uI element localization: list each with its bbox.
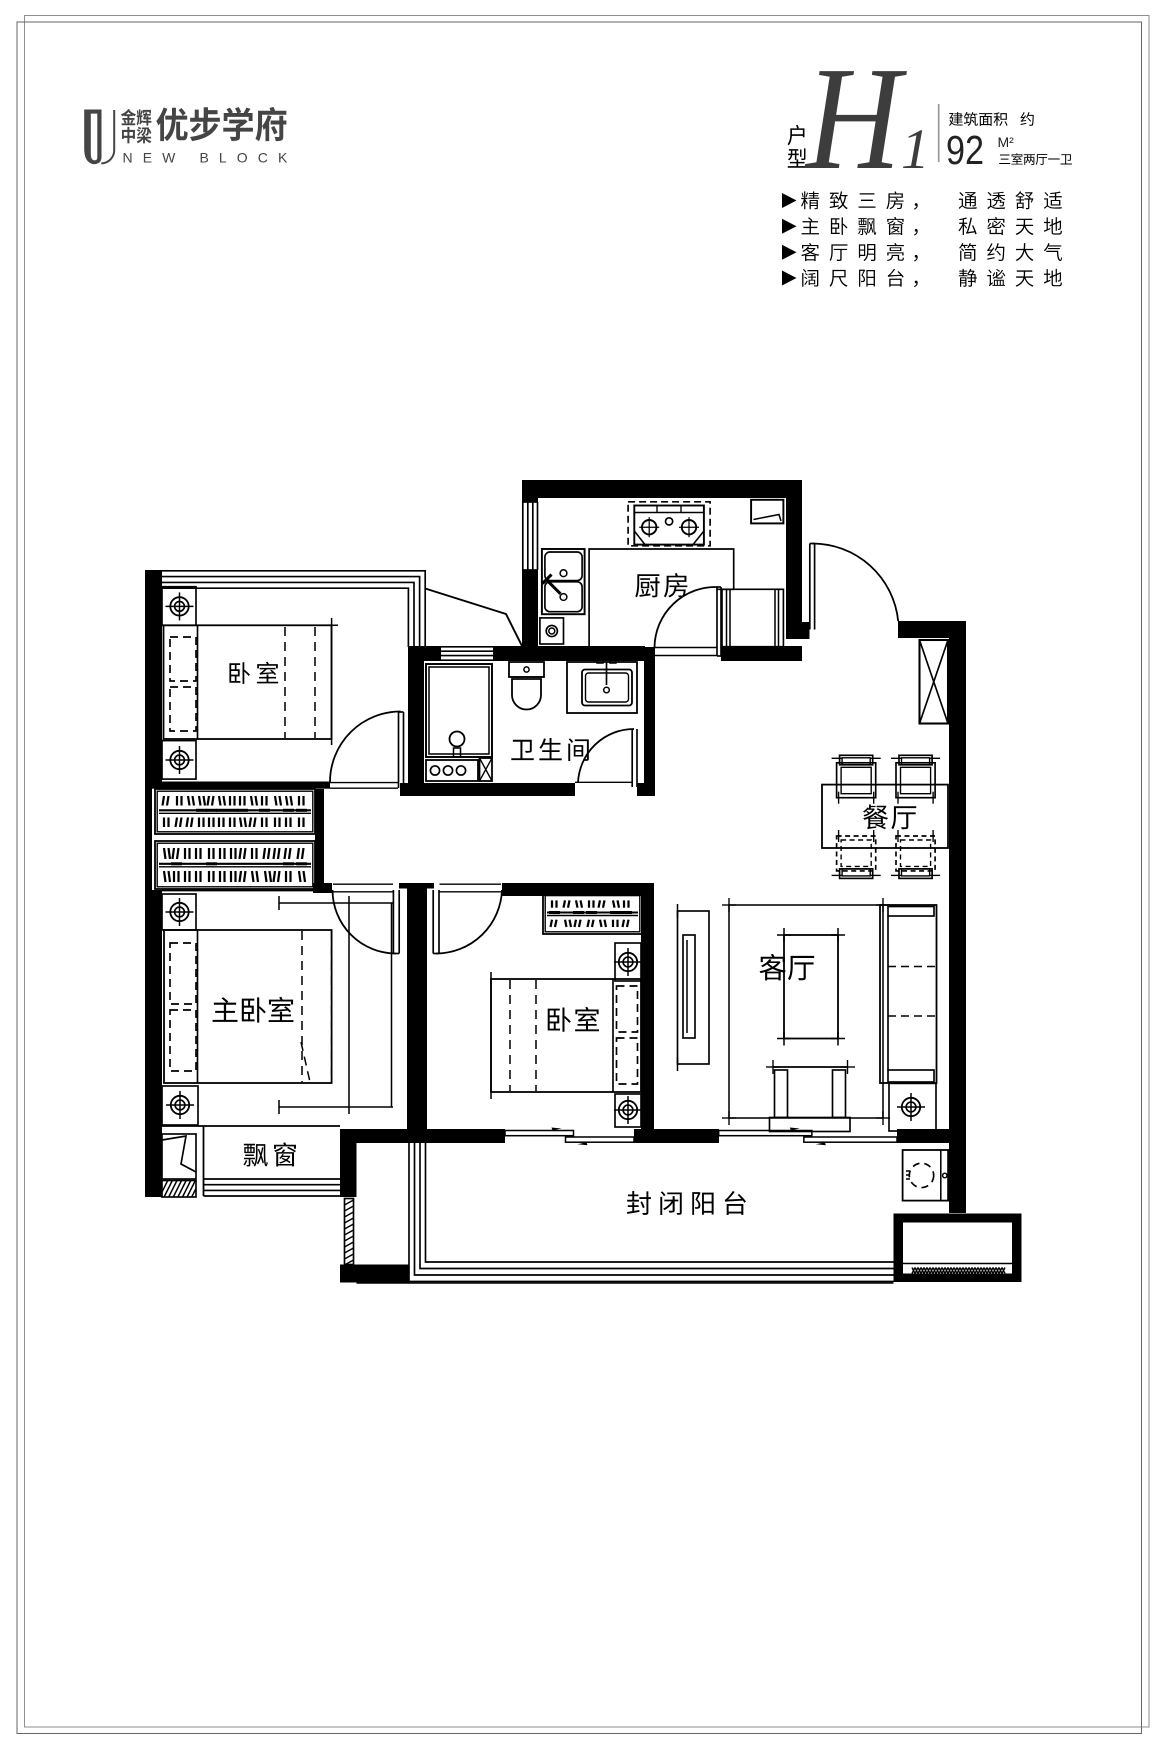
svg-text:92: 92 xyxy=(946,127,984,173)
svg-text:1: 1 xyxy=(901,118,930,181)
svg-text:H: H xyxy=(804,37,907,201)
svg-text:M²: M² xyxy=(998,134,1015,150)
svg-text:NEW BLOCK: NEW BLOCK xyxy=(123,150,298,166)
